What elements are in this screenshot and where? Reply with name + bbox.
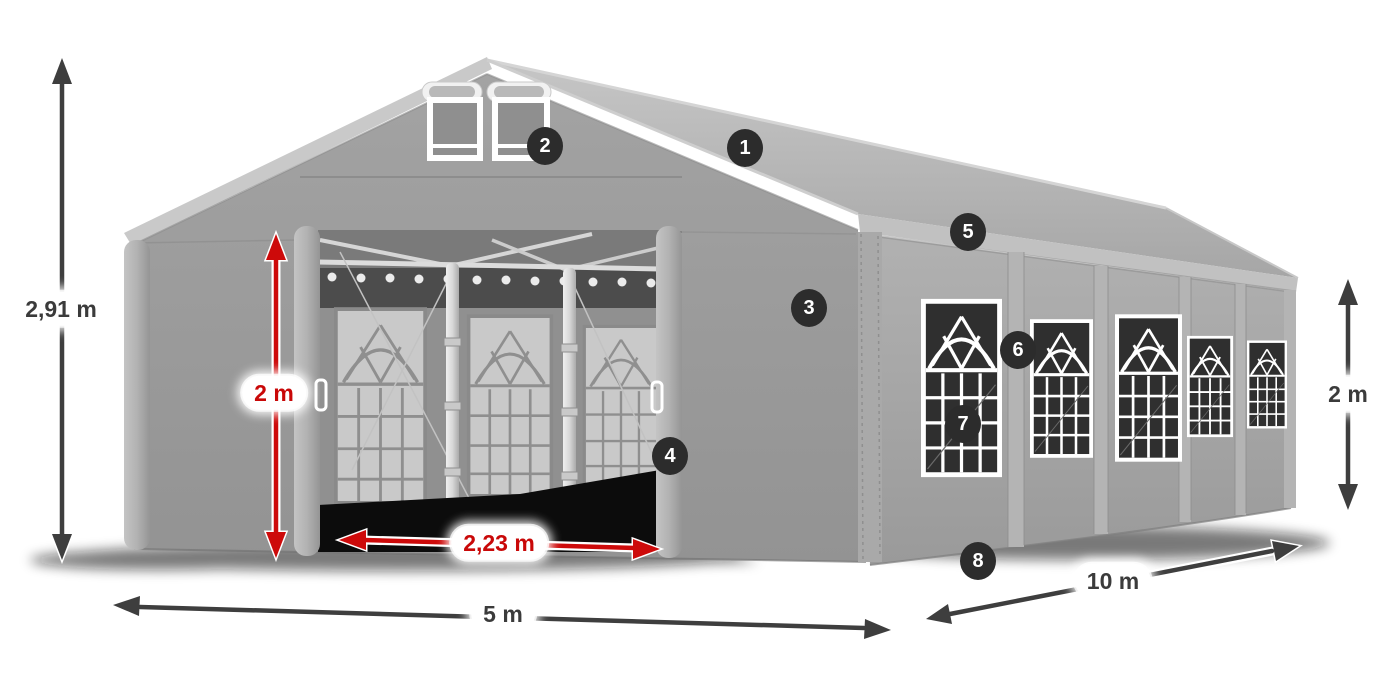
callout-3-wall-panel[interactable]: 3 <box>791 289 827 327</box>
vent-roll-right-core <box>494 86 544 98</box>
interior-window <box>584 326 657 485</box>
interior-window <box>469 316 552 496</box>
dimension-label-side-length: 10 m <box>1075 564 1151 598</box>
tent-dimension-diagram: 2,91 m 2 m 2,23 m 5 m 10 m 2 m 1 2 3 4 5… <box>0 0 1400 700</box>
dimension-label-door-width: 2,23 m <box>451 526 547 560</box>
callout-6-window-frame[interactable]: 6 <box>1000 331 1036 369</box>
dimension-label-front-width: 5 m <box>471 597 535 631</box>
front-corner-pole-left <box>124 240 150 550</box>
dimension-label-total-height: 2,91 m <box>13 292 109 326</box>
vent-window-left <box>430 100 480 158</box>
entrance-interior <box>318 230 660 552</box>
callout-8-skirt[interactable]: 8 <box>960 542 996 580</box>
side-window-2 <box>1032 321 1091 456</box>
door-pole-right <box>656 226 682 558</box>
side-wall <box>858 232 1296 565</box>
dimension-label-door-height: 2 m <box>242 376 306 410</box>
tent-illustration <box>0 0 1400 700</box>
interior-window <box>336 309 425 503</box>
side-window-3 <box>1117 316 1180 459</box>
vent-roll-left-core <box>429 86 475 98</box>
side-window-5 <box>1248 342 1286 428</box>
side-window-4 <box>1188 337 1231 435</box>
callout-4-door-pole[interactable]: 4 <box>652 437 688 475</box>
dimension-label-side-height: 2 m <box>1316 377 1380 411</box>
callout-2-gable-vents[interactable]: 2 <box>527 127 563 165</box>
callout-1-roof[interactable]: 1 <box>727 129 763 167</box>
callout-7-window-mesh[interactable]: 7 <box>945 405 981 443</box>
callout-5-eave[interactable]: 5 <box>950 213 986 251</box>
side-window-1 <box>923 301 999 474</box>
